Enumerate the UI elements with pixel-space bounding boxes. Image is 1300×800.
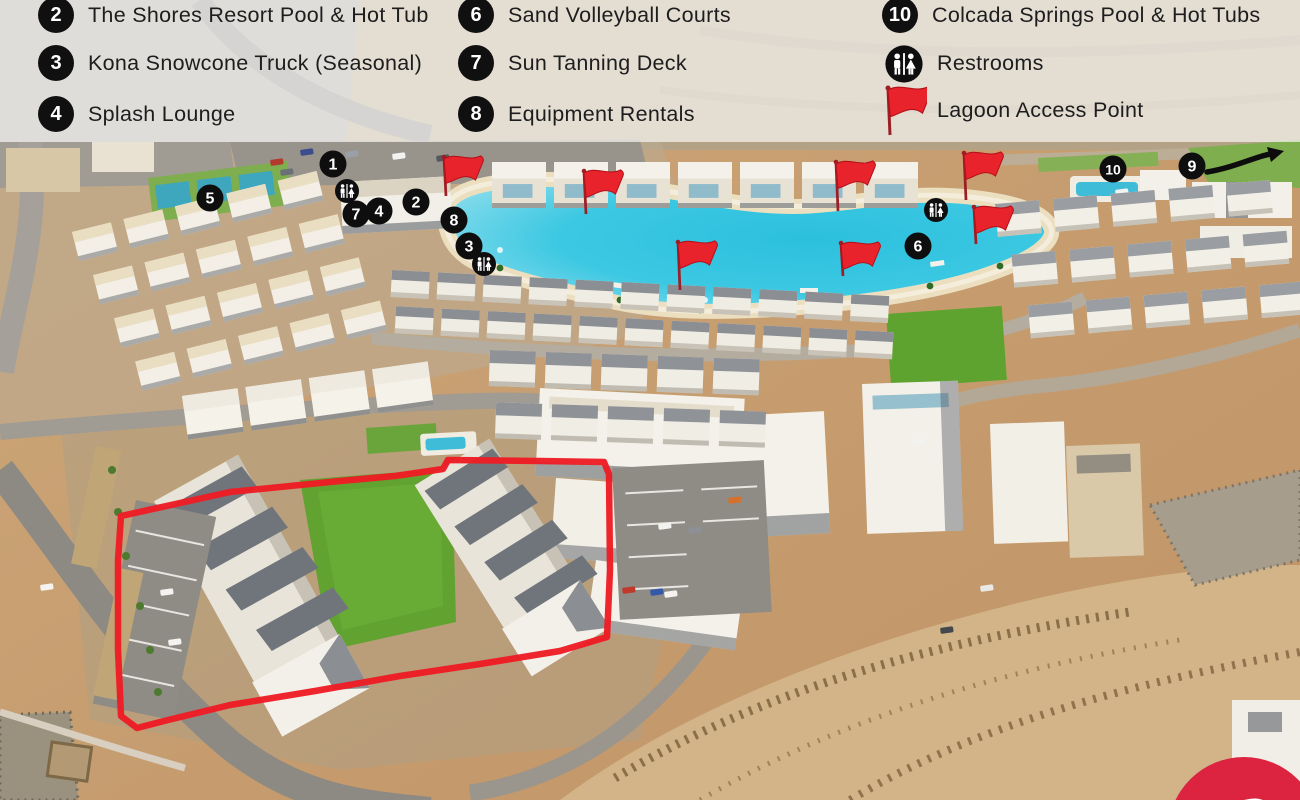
- svg-text:8: 8: [450, 213, 459, 230]
- legend-label: Equipment Rentals: [508, 102, 695, 127]
- legend-item-4: 4 Splash Lounge: [38, 96, 235, 132]
- legend-label: Lagoon Access Point: [937, 98, 1144, 123]
- svg-text:9: 9: [1188, 159, 1197, 176]
- map-marker-7: 7: [343, 201, 370, 228]
- arrowhead: [1267, 147, 1284, 162]
- lagoon-access-flag-icon: [582, 169, 624, 214]
- svg-text:5: 5: [206, 191, 215, 208]
- legend-number-badge: 6: [458, 0, 494, 33]
- map-marker-2: 2: [403, 189, 430, 216]
- legend-label: Colcada Springs Pool & Hot Tubs: [932, 3, 1260, 28]
- svg-text:4: 4: [375, 204, 384, 221]
- legend-label: Splash Lounge: [88, 102, 235, 127]
- svg-text:7: 7: [352, 207, 361, 224]
- map-marker-1: 1: [320, 151, 347, 178]
- lagoon-access-flag-icon: [885, 85, 927, 135]
- map-marker-8: 8: [441, 207, 468, 234]
- legend-item-2: 2 The Shores Resort Pool & Hot Tub: [38, 0, 429, 33]
- map-marker-5: 5: [197, 185, 224, 212]
- svg-text:1: 1: [329, 157, 338, 174]
- legend-label: Kona Snowcone Truck (Seasonal): [88, 51, 422, 76]
- lagoon-access-flag-icon: [442, 155, 484, 196]
- lagoon-access-flag-icon: [676, 240, 718, 290]
- lagoon-access-flag-icon: [962, 151, 1004, 200]
- legend-item-8: 8 Equipment Rentals: [458, 96, 695, 132]
- legend-item-6: 6 Sand Volleyball Courts: [458, 0, 731, 33]
- svg-text:3: 3: [465, 239, 474, 256]
- restroom-icon: [881, 37, 923, 89]
- map-marker-6: 6: [905, 233, 932, 260]
- resort-aerial-map: 12345678910R 2 The Shores Resort Pool & …: [0, 0, 1300, 800]
- legend-item-10: 10 Colcada Springs Pool & Hot Tubs: [882, 0, 1260, 33]
- flag-icon: [881, 84, 923, 136]
- lagoon-access-flag-icon: [834, 160, 876, 211]
- legend-item-lagoon-access: Lagoon Access Point: [881, 84, 1144, 136]
- map-marker-3: 3: [456, 233, 483, 260]
- legend-number-badge: 3: [38, 45, 74, 81]
- legend-label: Sun Tanning Deck: [508, 51, 687, 76]
- legend-label: Restrooms: [937, 51, 1044, 76]
- property-outline: [118, 460, 610, 728]
- legend-item-restrooms: Restrooms: [881, 37, 1044, 89]
- legend-item-3: 3 Kona Snowcone Truck (Seasonal): [38, 45, 422, 81]
- map-marker-10: 10: [1100, 156, 1127, 183]
- legend-label: Sand Volleyball Courts: [508, 3, 731, 28]
- legend-item-7: 7 Sun Tanning Deck: [458, 45, 687, 81]
- legend-number-badge: 8: [458, 96, 494, 132]
- lagoon-access-flag-icon: [972, 205, 1014, 244]
- map-marker-4: 4: [366, 198, 393, 225]
- svg-text:2: 2: [412, 195, 421, 212]
- legend-number-badge: 4: [38, 96, 74, 132]
- brand-badge: R: [1168, 757, 1300, 800]
- svg-text:6: 6: [914, 239, 923, 256]
- legend-number-badge: 7: [458, 45, 494, 81]
- legend-number-badge: 10: [882, 0, 918, 33]
- map-marker-9: 9: [1179, 153, 1206, 180]
- lagoon-access-flag-icon: [839, 241, 881, 276]
- legend-label: The Shores Resort Pool & Hot Tub: [88, 3, 429, 28]
- arrow-to-offmap: [1207, 153, 1276, 172]
- legend-number-badge: 2: [38, 0, 74, 33]
- svg-text:10: 10: [1105, 162, 1121, 178]
- restroom-icon: [885, 45, 922, 82]
- restroom-icon: [924, 198, 948, 222]
- restroom-icon: [335, 179, 359, 203]
- map-legend: 2 The Shores Resort Pool & Hot Tub 3 Kon…: [0, 0, 1300, 142]
